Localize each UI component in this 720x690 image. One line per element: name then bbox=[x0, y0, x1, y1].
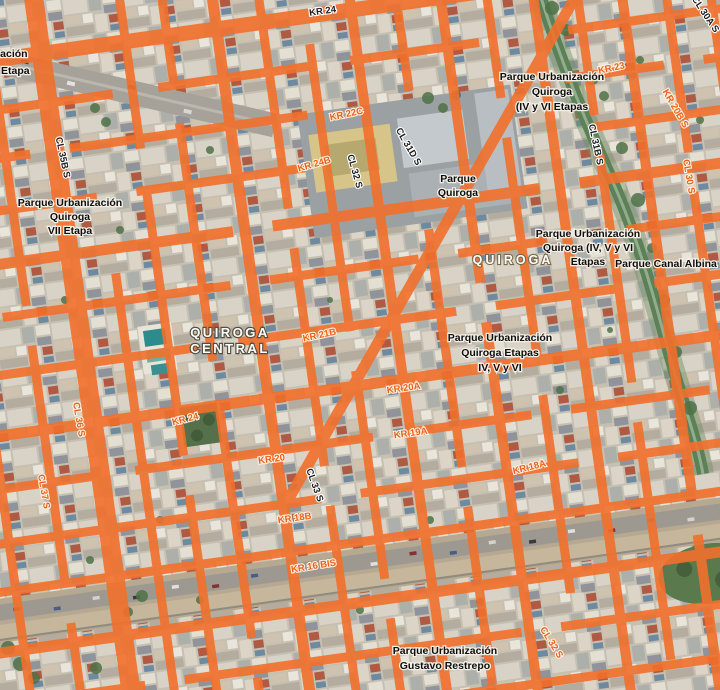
park-label-cutoff-line2: Etapa bbox=[1, 65, 30, 77]
park-label-quiroga-iv-v-vi-line1: Parque Urbanización bbox=[536, 228, 640, 240]
area-label-quiroga-central-line1: QUIROGA bbox=[190, 325, 270, 340]
park-label-quiroga-vii-line3: VII Etapa bbox=[48, 225, 93, 237]
park-label-quiroga-iv-vi-line1: Parque Urbanización bbox=[500, 71, 604, 83]
park-label-quiroga-iv-vi-line3: (IV y VI Etapas bbox=[516, 101, 589, 113]
map-canvas[interactable]: ización Etapa Parque Urbanización Quirog… bbox=[0, 0, 720, 690]
park-label-quiroga-iv-vi-line2: Quiroga bbox=[532, 86, 572, 98]
map-viewport[interactable]: ización Etapa Parque Urbanización Quirog… bbox=[0, 0, 720, 690]
park-label-cutoff-line1: ización bbox=[0, 48, 28, 60]
park-label-etapas-iv-v-vi-line2: Quiroga Etapas bbox=[461, 347, 539, 359]
park-label-gustavo-restrepo-line1: Parque Urbanización bbox=[393, 645, 497, 657]
area-label-quiroga-central-line2: CENTRAL bbox=[190, 341, 270, 356]
park-label-etapas-iv-v-vi-line1: Parque Urbanización bbox=[448, 332, 552, 344]
park-label-quiroga-iv-v-vi-line2: Quiroga (IV, V y VI bbox=[543, 242, 633, 254]
area-label-quiroga: QUIROGA bbox=[473, 253, 554, 267]
park-label-etapas-iv-v-vi-line3: IV, V y VI bbox=[478, 362, 521, 374]
park-label-gustavo-restrepo-line2: Gustavo Restrepo bbox=[400, 660, 490, 672]
park-label-quiroga-vii-line1: Parque Urbanización bbox=[18, 197, 122, 209]
park-label-quiroga-vii-line2: Quiroga bbox=[50, 211, 90, 223]
park-label-parque-quiroga-line1: Parque bbox=[440, 173, 476, 185]
park-label-parque-quiroga-line2: Quiroga bbox=[438, 187, 478, 199]
park-label-quiroga-iv-v-vi-line3: Etapas bbox=[571, 256, 606, 268]
park-label-canal-albina: Parque Canal Albina bbox=[615, 258, 717, 270]
